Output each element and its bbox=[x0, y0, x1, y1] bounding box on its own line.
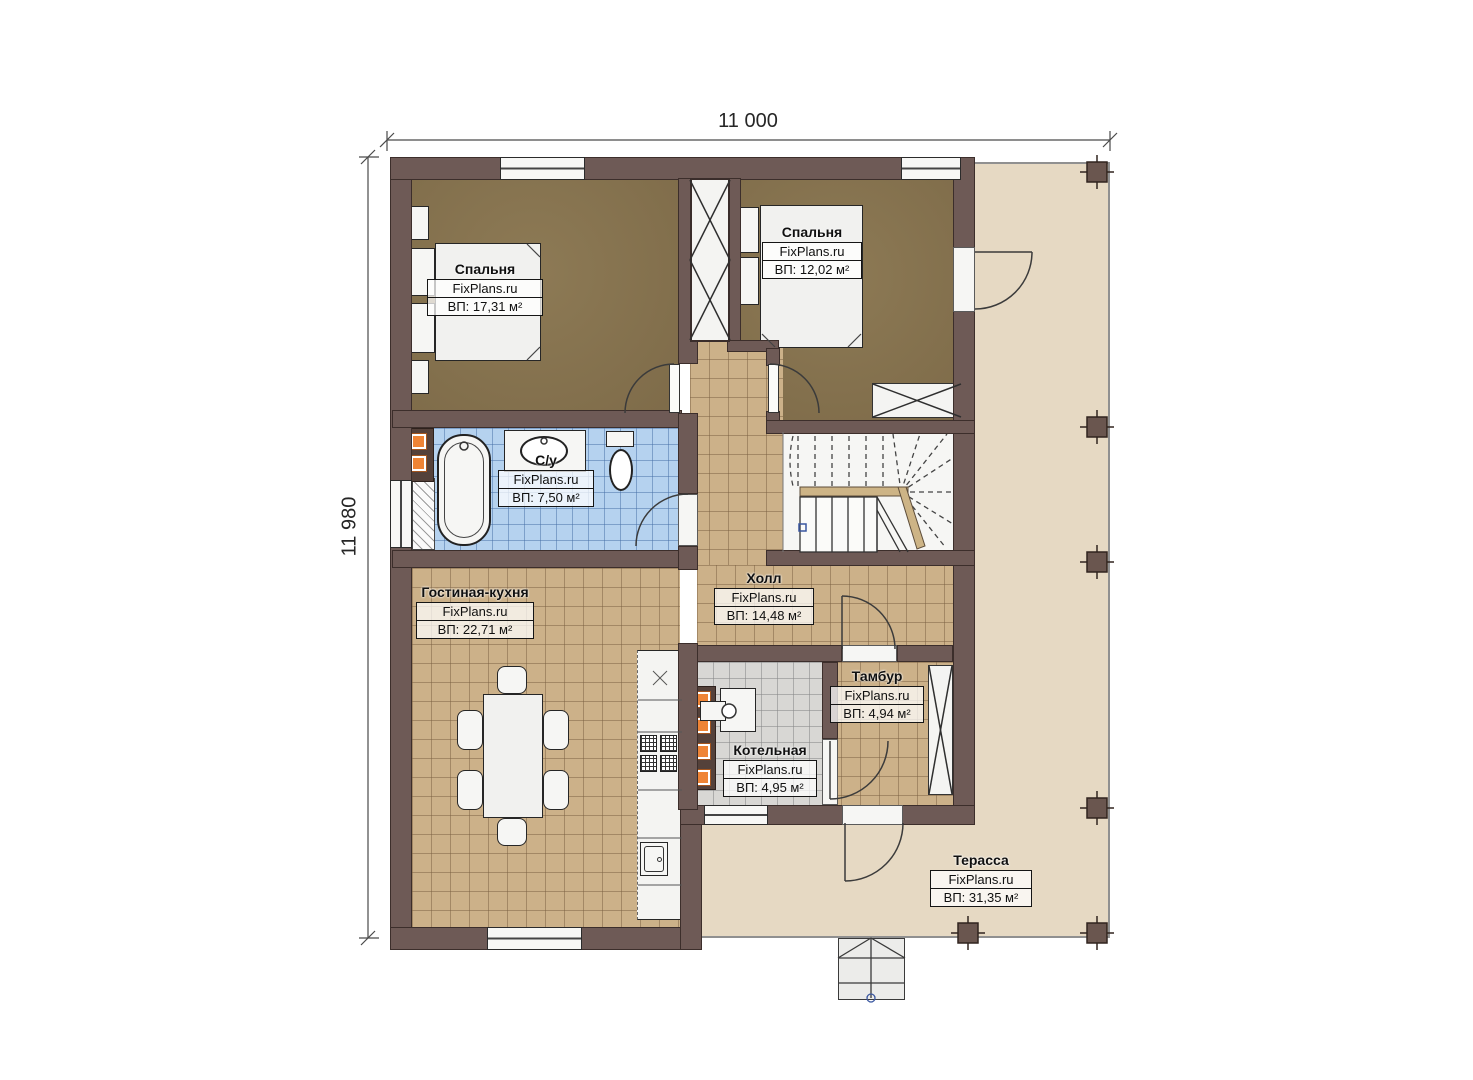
wall-hall-bottom-left bbox=[697, 645, 842, 662]
door-leaf-bedroom1 bbox=[669, 364, 680, 413]
toilet-bowl bbox=[609, 449, 633, 491]
window-bathroom-left bbox=[390, 480, 412, 548]
door-opening-bathroom bbox=[678, 494, 698, 546]
brand-watermark: FixPlans.ru bbox=[763, 243, 861, 260]
wall-stair-bottom bbox=[766, 550, 975, 566]
window-bedroom2-top bbox=[901, 157, 961, 180]
brand-watermark: FixPlans.ru bbox=[931, 871, 1031, 888]
room-label-terrace: Терасса FixPlans.ru ВП: 31,35 м² bbox=[930, 852, 1032, 907]
stove-burner bbox=[640, 735, 657, 752]
brand-watermark: FixPlans.ru bbox=[417, 603, 533, 620]
wall-bathroom-bottom bbox=[392, 550, 682, 568]
wall-hall-bottom-right bbox=[897, 645, 953, 662]
room-area: ВП: 14,48 м² bbox=[715, 606, 813, 624]
brand-watermark: FixPlans.ru bbox=[724, 761, 816, 778]
brand-watermark: FixPlans.ru bbox=[499, 471, 593, 488]
wardrobe-tambour bbox=[928, 665, 953, 795]
door-opening-boiler bbox=[822, 739, 838, 805]
wall-exterior-top bbox=[390, 157, 975, 180]
stove-burner bbox=[660, 755, 677, 772]
chair bbox=[457, 710, 483, 750]
room-label-bedroom2: Спальня FixPlans.ru ВП: 12,02 м² bbox=[762, 224, 862, 279]
window-boiler-bottom bbox=[704, 805, 768, 825]
entrance-steps bbox=[838, 938, 905, 1000]
wall-stair-top bbox=[766, 420, 975, 434]
brand-watermark: FixPlans.ru bbox=[715, 589, 813, 606]
room-label-bedroom1: Спальня FixPlans.ru ВП: 17,31 м² bbox=[427, 261, 543, 316]
chair bbox=[497, 666, 527, 694]
stove-burner bbox=[660, 735, 677, 752]
room-label-boiler: Котельная FixPlans.ru ВП: 4,95 м² bbox=[723, 742, 817, 797]
boiler-pipe bbox=[700, 701, 726, 721]
chair bbox=[497, 818, 527, 846]
chair bbox=[457, 770, 483, 810]
room-label-bathroom: С/у FixPlans.ru ВП: 7,50 м² bbox=[498, 452, 594, 507]
floor-plan: 11 000 11 980 Спальня FixPlans.ru ВП: 17… bbox=[0, 0, 1473, 1080]
room-title: С/у bbox=[498, 452, 594, 468]
room-area: ВП: 22,71 м² bbox=[417, 620, 533, 638]
room-area: ВП: 4,95 м² bbox=[724, 778, 816, 796]
linen-closet bbox=[412, 478, 435, 550]
kitchen-counter bbox=[637, 650, 683, 920]
chair bbox=[543, 770, 569, 810]
room-area: ВП: 7,50 м² bbox=[499, 488, 593, 506]
room-area: ВП: 17,31 м² bbox=[428, 297, 542, 315]
room-area: ВП: 31,35 м² bbox=[931, 888, 1031, 906]
room-title: Терасса bbox=[930, 852, 1032, 868]
terrace-floor-right bbox=[975, 162, 1110, 938]
window-living-bottom bbox=[487, 927, 582, 950]
dimension-top: 11 000 bbox=[698, 110, 798, 133]
bathtub bbox=[437, 434, 491, 546]
door-opening-bedroom2-terrace bbox=[953, 247, 975, 312]
brand-watermark: FixPlans.ru bbox=[428, 280, 542, 297]
dining-table bbox=[483, 694, 543, 818]
stairwell-floor bbox=[783, 432, 953, 552]
room-area: ВП: 4,94 м² bbox=[831, 704, 923, 722]
room-title: Спальня bbox=[427, 261, 543, 277]
toilet-tank bbox=[606, 431, 634, 447]
room-label-living-kitchen: Гостиная-кухня FixPlans.ru ВП: 22,71 м² bbox=[416, 584, 534, 639]
wall-center-vertical-d bbox=[678, 643, 698, 810]
ventilation-shaft bbox=[690, 178, 730, 342]
room-title: Холл bbox=[714, 570, 814, 586]
room-title: Спальня bbox=[762, 224, 862, 240]
door-opening-entrance bbox=[842, 805, 903, 825]
room-label-hall: Холл FixPlans.ru ВП: 14,48 м² bbox=[714, 570, 814, 625]
wall-center-vertical-b bbox=[678, 413, 698, 494]
wall-step-vertical bbox=[680, 822, 702, 950]
room-label-tambour: Тамбур FixPlans.ru ВП: 4,94 м² bbox=[830, 668, 924, 723]
room-title: Котельная bbox=[723, 742, 817, 758]
dimension-left: 11 980 bbox=[339, 477, 362, 577]
door-opening-hall-tambour bbox=[842, 645, 897, 662]
kitchen-sink bbox=[640, 842, 668, 876]
brand-watermark: FixPlans.ru bbox=[831, 687, 923, 704]
wall-bathroom-top bbox=[392, 410, 682, 428]
wardrobe-bedroom2 bbox=[872, 383, 962, 418]
window-bedroom1-top bbox=[500, 157, 585, 180]
wall-center-vertical-c bbox=[678, 546, 698, 570]
chair bbox=[543, 710, 569, 750]
stove-burner bbox=[640, 755, 657, 772]
room-title: Тамбур bbox=[830, 668, 924, 684]
door-leaf-bedroom2 bbox=[768, 364, 779, 413]
room-title: Гостиная-кухня bbox=[416, 584, 534, 600]
room-area: ВП: 12,02 м² bbox=[763, 260, 861, 278]
